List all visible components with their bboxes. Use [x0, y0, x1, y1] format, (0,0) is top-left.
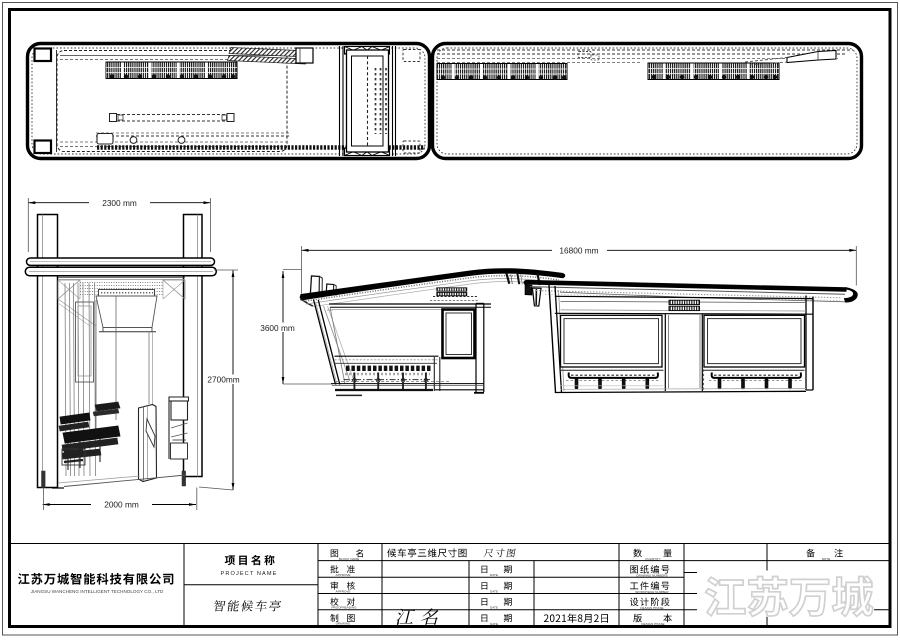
svg-text:DESIGN PHASE: DESIGN PHASE — [641, 622, 664, 626]
svg-text:DATE: DATE — [490, 606, 498, 610]
svg-text:DRAWING: DRAWING — [336, 622, 351, 626]
svg-text:APPROVE: APPROVE — [336, 573, 351, 577]
svg-text:DRAWING NUMBERS: DRAWING NUMBERS — [636, 573, 667, 577]
svg-text:BLOCK NAME: BLOCK NAME — [339, 557, 359, 561]
svg-text:DATE: DATE — [490, 622, 498, 626]
svg-text:QUANTITY: QUANTITY — [645, 557, 661, 561]
svg-text:3600 mm: 3600 mm — [260, 323, 295, 333]
svg-text:DESIGN PHASE: DESIGN PHASE — [640, 606, 663, 610]
svg-text:PROJECT NAME: PROJECT NAME — [221, 571, 278, 577]
svg-text:16800 mm: 16800 mm — [559, 246, 598, 256]
svg-text:DATE: DATE — [490, 590, 498, 594]
svg-text:2300 mm: 2300 mm — [102, 198, 137, 208]
svg-text:APPROVE: APPROVE — [336, 590, 351, 594]
svg-text:WORKPIECE NUMBER: WORKPIECE NUMBER — [635, 590, 669, 594]
svg-text:2700mm: 2700mm — [207, 375, 239, 385]
svg-text:PROOFREADING: PROOFREADING — [331, 606, 357, 610]
svg-text:2000 mm: 2000 mm — [104, 500, 139, 510]
svg-text:JIANGSU WANCHENG INTELLIGENT T: JIANGSU WANCHENG INTELLIGENT TECHNOLOGY … — [31, 589, 164, 594]
svg-text:NOTE: NOTE — [822, 557, 831, 561]
svg-text:DATE: DATE — [490, 573, 498, 577]
